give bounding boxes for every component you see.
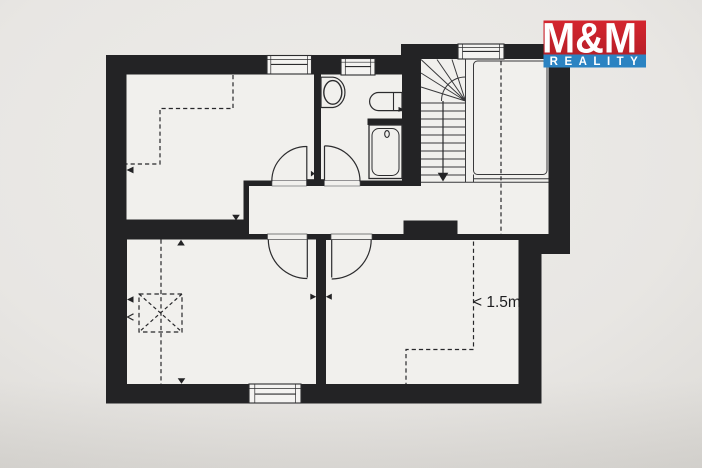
svg-text:REALITY: REALITY [550,56,645,68]
svg-text:< 1.5m: < 1.5m [473,294,521,311]
